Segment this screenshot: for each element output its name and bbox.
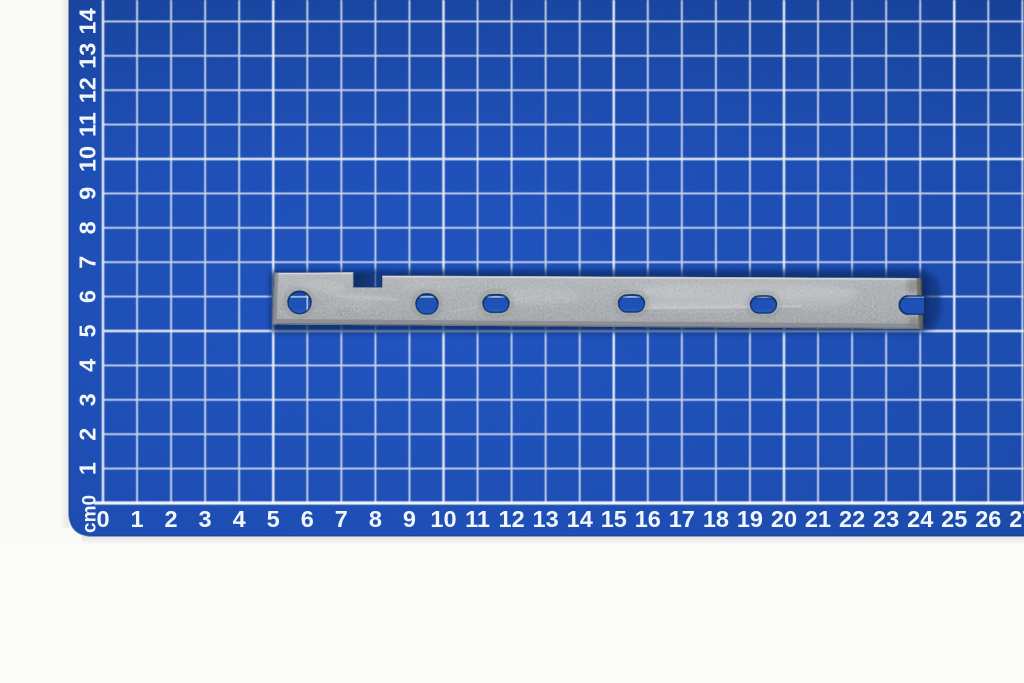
svg-text:22: 22 <box>839 506 865 532</box>
svg-text:8: 8 <box>75 221 101 234</box>
svg-text:5: 5 <box>267 506 280 532</box>
svg-text:19: 19 <box>737 506 763 532</box>
svg-text:4: 4 <box>75 359 101 372</box>
svg-text:6: 6 <box>75 290 101 303</box>
svg-text:26: 26 <box>975 506 1001 532</box>
svg-text:6: 6 <box>301 506 314 532</box>
svg-text:10: 10 <box>75 146 101 172</box>
svg-text:7: 7 <box>335 506 348 532</box>
svg-text:18: 18 <box>703 506 729 532</box>
svg-text:cm0: cm0 <box>80 495 101 533</box>
svg-text:13: 13 <box>75 43 101 69</box>
svg-text:4: 4 <box>233 506 246 532</box>
svg-text:21: 21 <box>805 506 831 532</box>
svg-text:8: 8 <box>369 506 382 532</box>
svg-text:9: 9 <box>403 506 416 532</box>
svg-text:2: 2 <box>75 428 101 441</box>
svg-text:17: 17 <box>669 506 695 532</box>
svg-text:15: 15 <box>601 506 627 532</box>
svg-text:24: 24 <box>907 506 933 532</box>
svg-text:16: 16 <box>635 506 661 532</box>
svg-text:1: 1 <box>131 506 144 532</box>
svg-text:7: 7 <box>75 256 101 269</box>
svg-text:5: 5 <box>75 324 101 337</box>
svg-text:13: 13 <box>533 506 559 532</box>
svg-text:12: 12 <box>499 506 525 532</box>
svg-text:23: 23 <box>873 506 899 532</box>
svg-text:3: 3 <box>199 506 212 532</box>
svg-text:11: 11 <box>465 506 490 532</box>
svg-text:12: 12 <box>75 77 101 103</box>
svg-text:3: 3 <box>75 393 101 406</box>
svg-text:14: 14 <box>75 8 101 34</box>
svg-text:25: 25 <box>941 506 967 532</box>
svg-text:10: 10 <box>430 506 456 532</box>
svg-text:9: 9 <box>75 187 101 200</box>
svg-text:20: 20 <box>771 506 797 532</box>
svg-text:2: 2 <box>165 506 178 532</box>
svg-text:11: 11 <box>75 112 101 137</box>
svg-text:27: 27 <box>1009 506 1024 532</box>
svg-text:1: 1 <box>75 462 101 475</box>
svg-text:14: 14 <box>567 506 593 532</box>
